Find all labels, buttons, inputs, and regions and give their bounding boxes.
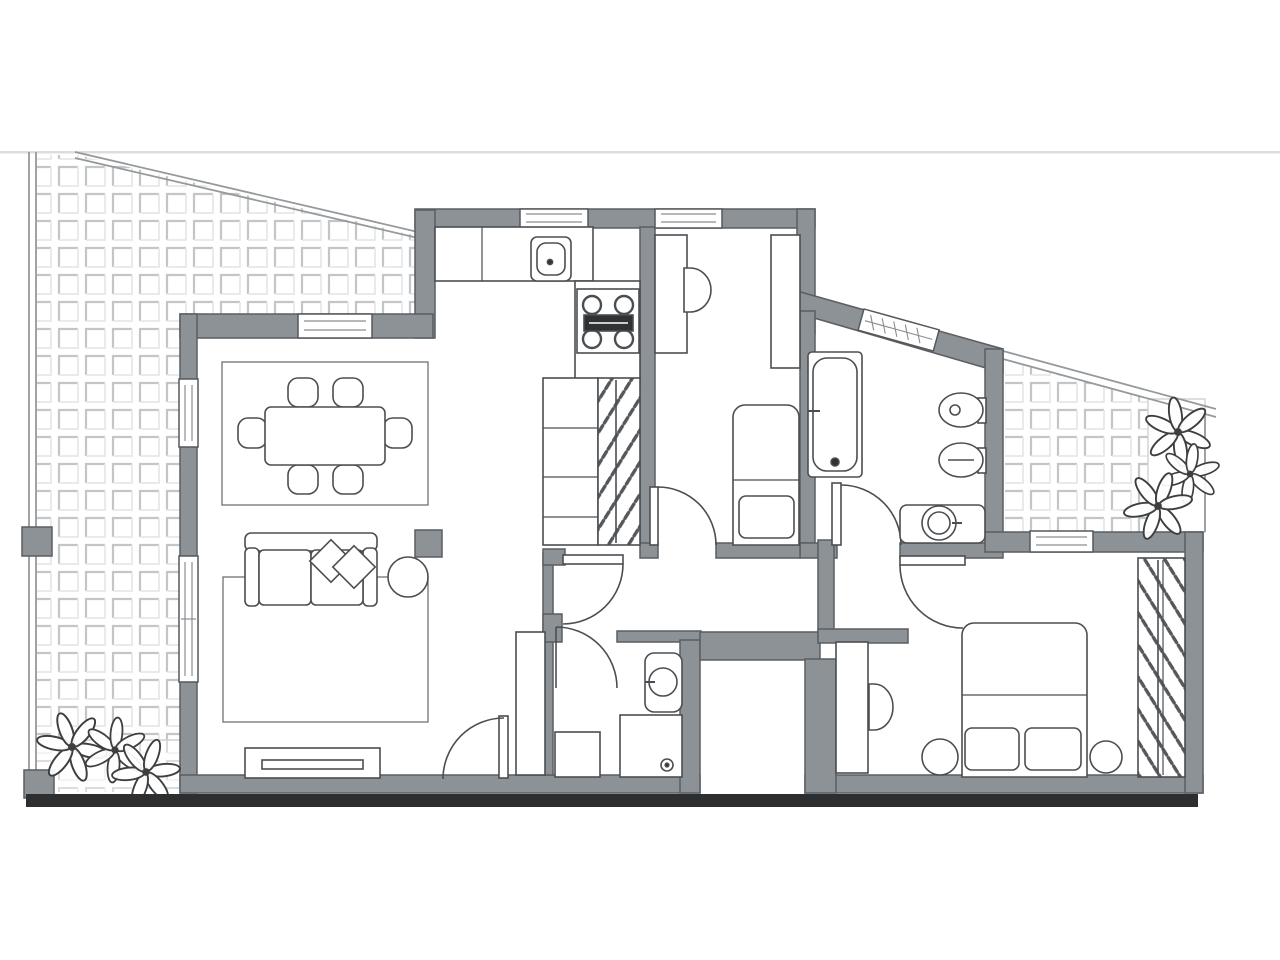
wall-bathroom-east <box>985 349 1003 545</box>
double-bed <box>962 623 1087 777</box>
shelf-cabinet <box>543 378 598 545</box>
washbasin-counter <box>900 505 985 543</box>
boundary-post <box>22 527 52 556</box>
kitchen-sink <box>531 237 571 281</box>
pillow-right <box>1025 728 1081 770</box>
bathtub <box>808 352 862 477</box>
desk-master-bedroom <box>836 642 868 773</box>
wall-bedroom-east <box>1185 532 1203 793</box>
floor-plan-drawing <box>0 0 1280 960</box>
pantry-closet-hangers <box>598 378 640 545</box>
pillow-left <box>965 728 1019 770</box>
dining-chair <box>333 465 363 494</box>
nightstand-left <box>922 739 958 775</box>
dining-chair <box>333 378 363 407</box>
window-bedroom2-north <box>655 209 722 228</box>
wc-toilet <box>645 653 682 712</box>
wall-bedroom-nw-stub <box>818 629 908 643</box>
wall-porch-east <box>805 659 836 793</box>
column-living-kitchen <box>415 530 442 557</box>
window-living-north <box>298 314 372 338</box>
wardrobe-cabinet-small-bedroom <box>771 235 800 368</box>
dining-chair <box>288 378 318 407</box>
horizon-line <box>0 151 1280 154</box>
sofa <box>245 533 377 606</box>
wall-nib-wc-door <box>543 614 562 642</box>
single-bed <box>733 405 799 545</box>
wall-north-kitchen <box>415 209 815 228</box>
wc-low-cabinet <box>555 732 600 777</box>
window-living-west-upper <box>179 379 198 447</box>
window-kitchen-north <box>520 209 588 228</box>
wall-porch-north <box>700 632 820 660</box>
living-storage-closet <box>516 632 545 775</box>
round-side-table <box>388 557 428 597</box>
ground-baseline <box>26 794 1198 807</box>
nightstand-right <box>1090 741 1122 773</box>
wall-wc-east <box>680 640 700 793</box>
dining-chair <box>288 465 318 494</box>
bidet <box>939 393 986 427</box>
toilet <box>939 443 986 477</box>
pantry-storage-block <box>543 378 640 545</box>
desk-small-bedroom <box>655 235 687 353</box>
window-bedroom-north <box>1030 531 1093 552</box>
cooktop <box>577 289 639 353</box>
open-wardrobe <box>1138 558 1185 777</box>
dining-chair <box>383 418 412 448</box>
shower-tray <box>620 715 682 777</box>
wall-nib-hall-door <box>543 549 565 565</box>
wall-bedroom-north <box>985 532 1203 552</box>
window-living-west-lower <box>179 556 198 682</box>
tv-bench <box>245 748 380 778</box>
wall-nook-west <box>818 540 834 640</box>
dining-table <box>265 407 385 465</box>
floor-plan-canvas <box>0 0 1280 960</box>
dining-chair <box>238 418 267 448</box>
pillow <box>739 496 794 538</box>
